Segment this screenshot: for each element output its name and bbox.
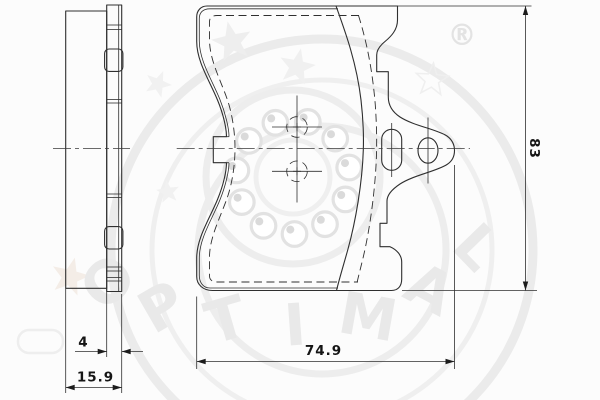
brake-pad-drawing: O P T I M A L ® <box>0 0 600 400</box>
total-thickness-label: 15.9 <box>77 370 114 386</box>
backplate-thickness-label: 4 <box>78 335 88 351</box>
watermark-stadium-shape <box>18 330 63 353</box>
side-view <box>53 5 130 292</box>
watermark-letter: T <box>198 282 255 358</box>
technical-drawing-canvas: O P T I M A L ® <box>0 0 600 400</box>
star-icon <box>141 66 175 99</box>
retainer-lug-upper <box>105 49 123 71</box>
registered-trademark-icon: ® <box>448 18 477 52</box>
height-dimension-label: 83 <box>526 138 542 159</box>
bearing-inner-race <box>256 140 330 214</box>
width-dimension-label: 74.9 <box>305 343 342 359</box>
watermark-logo: O P T I M A L ® <box>18 17 533 400</box>
